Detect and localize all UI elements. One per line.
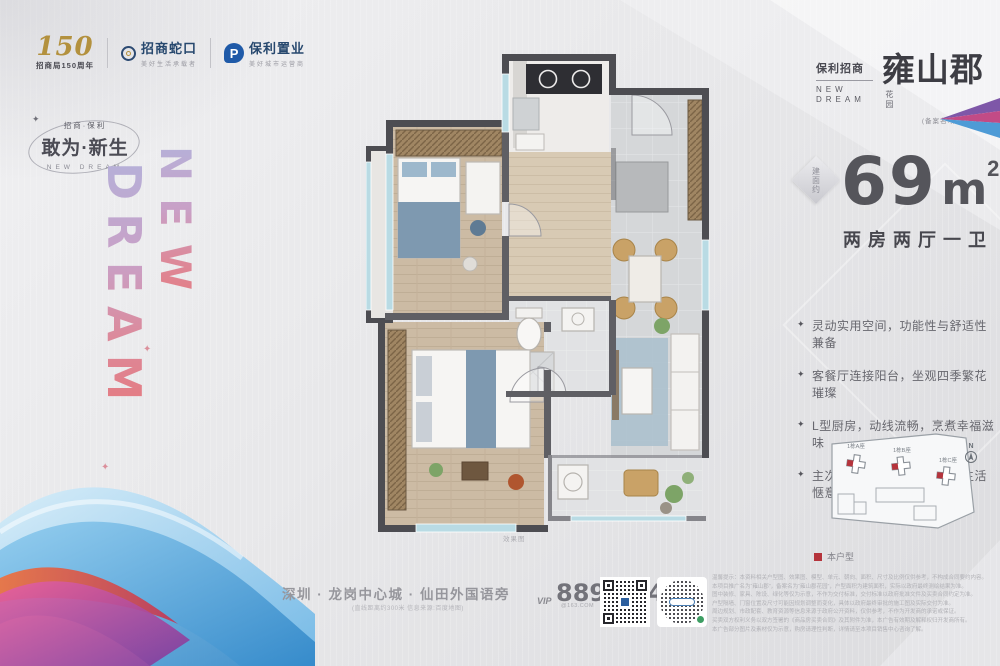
bench: [462, 462, 488, 480]
cmsk-name: 招商蛇口: [141, 38, 197, 57]
project-brand-en-1: NEW: [816, 85, 873, 95]
plant-icon: [665, 485, 683, 503]
vip-label: VIP: [537, 596, 552, 606]
washing-machine: [558, 465, 588, 499]
sparkle-icon: ✦: [32, 114, 40, 125]
highlight-unit: [937, 472, 944, 479]
dining-table: [629, 256, 661, 302]
logo-150-label: 招商局150周年: [36, 60, 94, 71]
lounge-chair: [624, 470, 658, 496]
plant-icon: [654, 318, 670, 334]
area-unit: m: [941, 164, 987, 215]
logo-150th-anniversary: 150 招商局150周年: [36, 36, 94, 71]
side-table: [463, 257, 477, 271]
cabinet: [616, 162, 668, 212]
project-brand: 保利招商: [816, 60, 873, 76]
north-label: N: [968, 443, 973, 450]
area-figure: 69 m2: [841, 143, 999, 220]
qr-finder-icon: [603, 580, 614, 591]
bedroom2-wardrobe: [396, 130, 502, 156]
kitchen-sink: [513, 98, 539, 130]
pillow: [416, 402, 432, 442]
toilet: [517, 318, 541, 350]
area-badge-label: 建面约: [799, 163, 833, 197]
cmsk-slogan: 美好生活承载者: [141, 59, 197, 68]
qr-code-square: [600, 577, 650, 627]
feature-item: ✦ 灵动实用空间，功能性与舒适性兼备: [797, 317, 997, 351]
legend-label: 本户型: [827, 550, 854, 563]
desk-chair: [470, 220, 486, 236]
disclaimer-line: 户型隔墙、门窗位置及尺寸可能因规划调整而变化，具体以政府最终审批的施工图及实际交…: [712, 600, 996, 609]
wave-ribbon-decoration: [0, 428, 315, 666]
toilet-tank: [516, 308, 542, 318]
project-name-suffix: 花园: [884, 90, 895, 110]
feature-bullet-icon: ✦: [797, 317, 805, 332]
feature-text: 客餐厅连接阳台，坐观四季繁花璀璨: [812, 367, 997, 401]
north-arrow-icon: [969, 453, 974, 461]
pillow: [431, 162, 456, 177]
feature-text: 灵动实用空间，功能性与舒适性兼备: [812, 317, 997, 351]
highlight-unit: [892, 463, 899, 470]
pillow: [416, 356, 432, 396]
sofa: [671, 334, 699, 450]
bed-cover: [398, 202, 460, 258]
logo-150-number: 150: [36, 36, 94, 58]
project-name: 雍山郡: [882, 51, 984, 88]
disclaimer-line: 本项目推广名为“雍山郡”，备案名为“雍山郡花园”，户型面积为建筑面积，实际以政府…: [712, 583, 996, 592]
qr-finder-icon: [636, 580, 647, 591]
feature-bullet-icon: ✦: [797, 417, 805, 432]
logo-poly: P 保利置业 美好城市运营商: [224, 38, 305, 68]
vertical-text-new: NEW: [151, 146, 200, 307]
plant-icon: [429, 463, 443, 477]
planter-pot: [660, 502, 672, 514]
plant-icon: [682, 472, 694, 484]
logo-china-merchants: 招商蛇口 美好生活承载者: [121, 38, 197, 68]
poster: 150 招商局150周年 招商蛇口 美好生活承载者 P 保利置业 美好城市运营商…: [0, 0, 1000, 666]
disclaimer-line: 买卖双方权利义务以双方签署的《商品房买卖合同》及其附件为准，本广告有效期及解释权…: [712, 617, 996, 626]
legend-swatch-icon: [814, 553, 822, 561]
feature-item: ✦ 客餐厅连接阳台，坐观四季繁花璀璨: [797, 367, 997, 401]
disclaimer-line: 本广告部分图片及素材仅为示意，购房请理性判断，详情请至本项目销售中心咨询了解。: [712, 626, 996, 635]
qr-center-pill: [669, 598, 695, 606]
unit-layout-text: 两房两厅一卫: [843, 226, 993, 252]
feature-bullet-icon: ✦: [797, 367, 805, 382]
fridge: [516, 134, 544, 150]
stove: [526, 64, 602, 94]
master-wardrobe: [388, 330, 406, 510]
edge-arrow-decoration: [940, 96, 1000, 142]
building-label: 1栋A座: [847, 442, 865, 450]
phone-suffix: @163.COM: [561, 603, 594, 609]
poly-slogan: 美好城市运营商: [249, 59, 305, 68]
vertical-text-dream: DREAM: [97, 162, 151, 413]
feature-bullet-icon: ✦: [797, 467, 805, 482]
building-label: 1栋B座: [893, 446, 911, 454]
cmsk-ring-icon: [121, 46, 136, 61]
disclaimer-block: 温馨提示：本资料相关户型图、效果图、模型、单元、朝向、面积、尺寸及比例仅供参考，…: [712, 574, 996, 634]
project-brand-en-2: DREAM: [816, 95, 873, 105]
qr-finder-icon: [603, 613, 614, 624]
poly-p-icon: P: [224, 43, 244, 63]
pillow: [402, 162, 427, 177]
qr-center-logo: [620, 597, 630, 607]
area-number: 69: [841, 143, 937, 220]
header-logos: 150 招商局150周年 招商蛇口 美好生活承载者 P 保利置业 美好城市运营商: [36, 30, 305, 76]
floor-plan: [366, 50, 718, 542]
disclaimer-line: 温馨提示：本资料相关户型图、效果图、模型、单元、朝向、面积、尺寸及比例仅供参考，…: [712, 574, 996, 583]
entry-wardrobe: [688, 100, 702, 220]
bathroom-sink: [562, 308, 594, 331]
site-plan: 1栋A座 1栋B座 1栋C座 N: [818, 428, 983, 546]
divider: [816, 80, 873, 81]
disclaimer-line: 图中装修、家具、陈设、绿化等仅为示意，不作为交付标准，交付标准以政府批准文件及买…: [712, 591, 996, 600]
area-badge-diamond: 建面约: [792, 156, 840, 204]
disclaimer-line: 周边规划、市政配套、教育资源等信息来源于政府公开资料，仅供参考，不作为开发商的承…: [712, 608, 996, 617]
desk: [466, 162, 500, 214]
bed-runner: [466, 350, 496, 448]
armchair: [508, 474, 524, 490]
address-note: (直线距离约300米 信息来源:百度地图): [352, 603, 464, 612]
highlight-unit: [847, 460, 854, 467]
coffee-table: [622, 368, 652, 414]
sparkle-icon: ✦: [143, 344, 151, 355]
qr-code-round: [657, 577, 707, 627]
floor-plan-caption: 效果图: [503, 533, 526, 543]
divider: [210, 38, 211, 68]
qr-green-badge-icon: [696, 615, 705, 624]
site-plan-legend: 本户型: [814, 550, 854, 563]
divider: [107, 38, 108, 68]
building-label: 1栋C座: [939, 456, 958, 464]
area-superscript: 2: [987, 156, 999, 181]
project-address: 深圳 · 龙岗中心城 · 仙田外国语旁: [282, 583, 510, 603]
poly-name: 保利置业: [249, 38, 305, 57]
